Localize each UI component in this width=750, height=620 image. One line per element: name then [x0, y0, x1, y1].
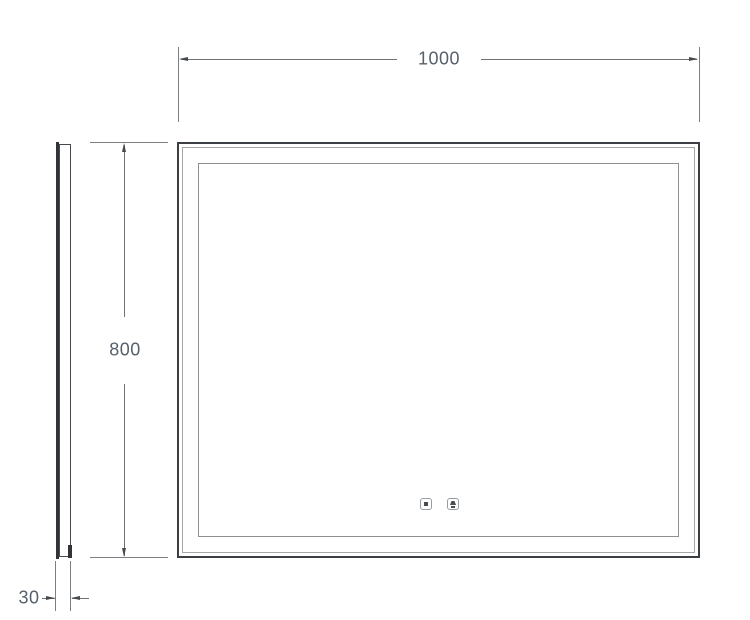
light-button-glyph-icon — [424, 502, 428, 506]
width-dimension-label: 1000 — [418, 49, 460, 70]
mirror-front-view — [177, 142, 700, 558]
touch-light-button-icon — [420, 498, 432, 510]
depth-extension-line-right — [70, 561, 71, 611]
width-dimension-line-left — [181, 59, 397, 60]
defog-button-glyph-icon — [450, 501, 456, 505]
mirror-side-view-bottom-bracket — [68, 545, 72, 558]
defog-button-glyph-base-icon — [451, 506, 455, 508]
arrow-right-icon — [46, 596, 55, 600]
mirror-led-frame — [198, 163, 679, 537]
arrow-down-icon — [122, 548, 126, 557]
mirror-mid-frame — [182, 147, 695, 553]
height-dimension-label: 800 — [109, 340, 141, 361]
arrow-right-icon — [689, 57, 698, 61]
depth-extension-line-left — [55, 561, 56, 611]
technical-drawing-canvas: 1000 800 30 — [0, 0, 750, 620]
arrow-up-icon — [122, 143, 126, 152]
width-dimension-line-right — [481, 59, 697, 60]
height-dimension-line-top — [124, 145, 125, 317]
arrow-left-icon — [71, 596, 80, 600]
touch-defog-button-icon — [447, 498, 459, 510]
width-extension-line-right — [699, 47, 700, 122]
depth-dimension-label: 30 — [18, 588, 39, 609]
height-extension-line-top — [90, 142, 168, 143]
height-dimension-line-bottom — [124, 384, 125, 556]
mirror-side-view-body — [59, 144, 71, 557]
arrow-left-icon — [179, 57, 188, 61]
height-extension-line-bottom — [90, 557, 168, 558]
